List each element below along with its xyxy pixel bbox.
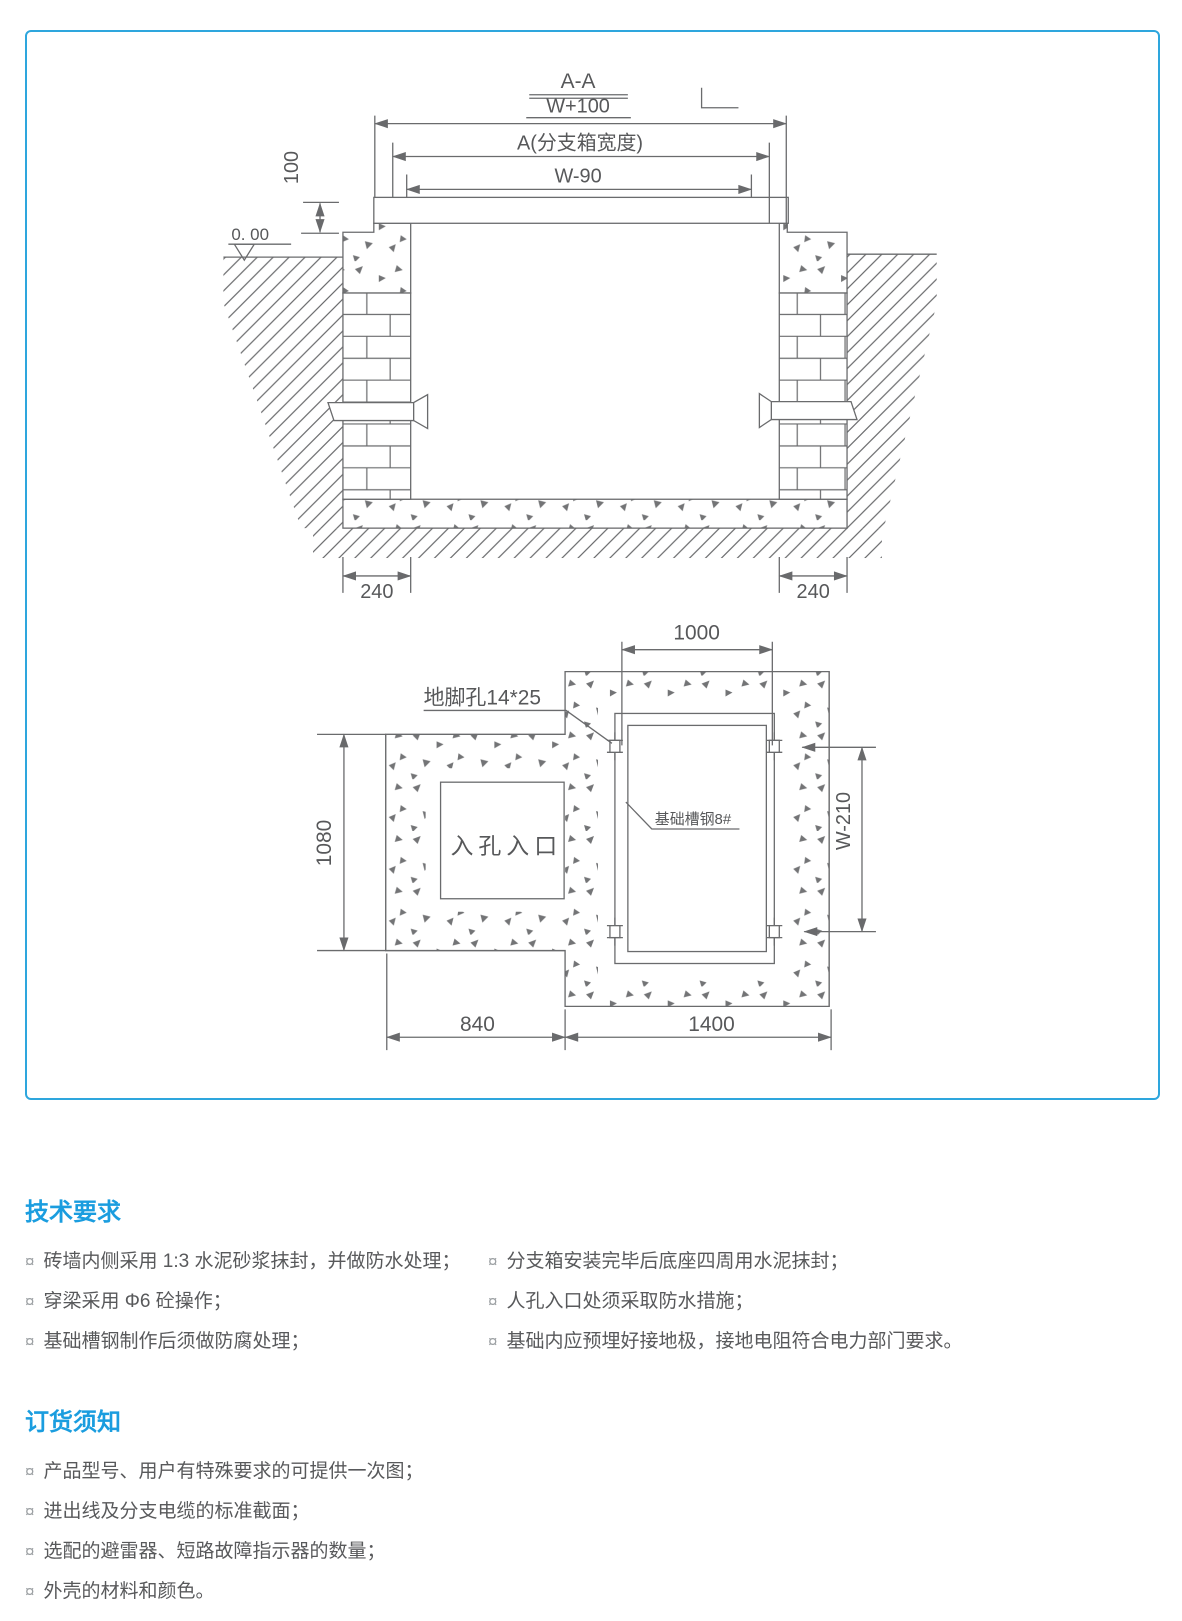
dim-inner-width: W-90	[407, 165, 752, 197]
box-width-label: A(分支箱宽度)	[517, 132, 643, 155]
ground-hatch-bottom	[313, 528, 882, 558]
technical-requirements-section: 技术要求 ¤ 砖墙内侧采用 1:3 水泥砂浆抹封，并做防水处理； ¤ 穿梁采用 …	[25, 1192, 1165, 1371]
ordering-notes-title: 订货须知	[25, 1402, 1165, 1437]
requirement-text: 基础内应预埋好接地极，接地电阻符合电力部门要求。	[506, 1331, 962, 1354]
bullet-icon: ¤	[488, 1331, 497, 1354]
bullet-icon: ¤	[25, 1461, 34, 1484]
pier-left-label: 240	[360, 581, 393, 603]
inner-width-label: W-90	[554, 165, 601, 187]
requirement-text: 人孔入口处须采取防水措施；	[506, 1291, 753, 1314]
section-view: A-A W+100 A(分支箱宽度) W-90 100	[223, 70, 936, 603]
requirement-text: 穿梁采用 Φ6 砼操作；	[43, 1291, 231, 1314]
cover-slab	[374, 197, 788, 223]
dim-left-height: 1080	[313, 734, 386, 950]
ordering-notes-list: ¤ 产品型号、用户有特殊要求的可提供一次图； ¤ 进出线及分支电缆的标准截面； …	[25, 1461, 1165, 1604]
manhole: 入孔入口	[441, 782, 565, 899]
right-span-label: W-210	[833, 792, 855, 850]
manhole-label: 入孔入口	[451, 833, 563, 859]
ordering-text: 选配的避雷器、短路故障指示器的数量；	[43, 1541, 385, 1564]
left-height-label: 1080	[313, 820, 336, 867]
right-pier-cap	[779, 223, 847, 293]
ordering-text: 外壳的材料和颜色。	[43, 1581, 214, 1604]
ground-level-label: 0. 00	[231, 225, 269, 244]
bullet-icon: ¤	[25, 1581, 34, 1604]
bottom-slab	[343, 499, 847, 528]
ground-hatch-right	[847, 254, 937, 528]
technical-requirements-list-left: ¤ 砖墙内侧采用 1:3 水泥砂浆抹封，并做防水处理； ¤ 穿梁采用 Φ6 砼操…	[25, 1251, 488, 1371]
right-pier-brick	[779, 293, 847, 499]
slab-offset-label: 100	[281, 151, 303, 184]
section-title: A-A W+100	[526, 70, 631, 118]
bullet-icon: ¤	[25, 1501, 34, 1524]
level-mark: 0. 00	[228, 225, 291, 260]
foundation-drawing: A-A W+100 A(分支箱宽度) W-90 100	[27, 32, 1158, 1098]
requirement-item: ¤ 穿梁采用 Φ6 砼操作；	[25, 1291, 488, 1314]
left-pier	[343, 223, 411, 499]
requirement-item: ¤ 基础内应预埋好接地极，接地电阻符合电力部门要求。	[488, 1331, 1165, 1354]
dim-bottom-right: 1400	[565, 1009, 831, 1050]
dim-pier-right: 240	[779, 557, 847, 603]
beam-left-flare	[414, 395, 428, 429]
requirement-item: ¤ 人孔入口处须采取防水措施；	[488, 1291, 1165, 1314]
anchor-hole-label: 地脚孔14*25	[424, 686, 541, 709]
overall-width-label: W+100	[546, 96, 610, 118]
requirement-text: 分支箱安装完毕后底座四周用水泥抹封；	[506, 1251, 848, 1274]
pier-right-label: 240	[797, 581, 830, 603]
bullet-icon: ¤	[25, 1291, 34, 1314]
bottom-left-label: 840	[460, 1013, 495, 1036]
dim-bottom-left: 840	[387, 954, 565, 1051]
ground-hatch-left	[223, 257, 343, 528]
requirement-text: 基础槽钢制作后须做防腐处理；	[43, 1331, 309, 1354]
left-pier-brick	[343, 293, 411, 499]
channel-steel-label: 基础槽钢8#	[655, 811, 732, 828]
section-name-label: A-A	[561, 70, 596, 93]
plan-view: 入孔入口 地脚孔14*25 基础槽钢8# 1000 1080	[313, 622, 876, 1050]
bullet-icon: ¤	[25, 1541, 34, 1564]
technical-requirements-columns: ¤ 砖墙内侧采用 1:3 水泥砂浆抹封，并做防水处理； ¤ 穿梁采用 Φ6 砼操…	[25, 1251, 1165, 1371]
requirement-item: ¤ 分支箱安装完毕后底座四周用水泥抹封；	[488, 1251, 1165, 1274]
beam-right-flare	[759, 394, 771, 428]
ordering-item: ¤ 外壳的材料和颜色。	[25, 1581, 1165, 1604]
left-pier-cap	[343, 223, 411, 293]
ordering-text: 进出线及分支电缆的标准截面；	[43, 1501, 309, 1524]
bullet-icon: ¤	[25, 1331, 34, 1354]
bullet-icon: ¤	[25, 1251, 34, 1274]
requirement-text: 砖墙内侧采用 1:3 水泥砂浆抹封，并做防水处理；	[43, 1251, 460, 1274]
right-pier	[779, 223, 847, 499]
corner-mark	[702, 88, 739, 108]
technical-drawing-panel: A-A W+100 A(分支箱宽度) W-90 100	[25, 30, 1160, 1100]
ordering-text: 产品型号、用户有特殊要求的可提供一次图；	[43, 1461, 423, 1484]
top-span-label: 1000	[673, 622, 720, 645]
ordering-item: ¤ 进出线及分支电缆的标准截面；	[25, 1501, 1165, 1524]
ordering-notes-section: 订货须知 ¤ 产品型号、用户有特殊要求的可提供一次图； ¤ 进出线及分支电缆的标…	[25, 1402, 1165, 1621]
requirement-item: ¤ 基础槽钢制作后须做防腐处理；	[25, 1331, 488, 1354]
ordering-item: ¤ 产品型号、用户有特殊要求的可提供一次图；	[25, 1461, 1165, 1484]
channel-frame-outer	[615, 713, 774, 963]
technical-requirements-title: 技术要求	[25, 1192, 1165, 1227]
bottom-right-label: 1400	[688, 1013, 735, 1036]
dim-pier-left: 240	[343, 557, 411, 603]
dim-slab-offset: 100	[281, 151, 339, 233]
requirement-item: ¤ 砖墙内侧采用 1:3 水泥砂浆抹封，并做防水处理；	[25, 1251, 488, 1274]
bullet-icon: ¤	[488, 1291, 497, 1314]
technical-requirements-list-right: ¤ 分支箱安装完毕后底座四周用水泥抹封； ¤ 人孔入口处须采取防水措施； ¤ 基…	[488, 1251, 1165, 1371]
bullet-icon: ¤	[488, 1251, 497, 1274]
ordering-item: ¤ 选配的避雷器、短路故障指示器的数量；	[25, 1541, 1165, 1564]
